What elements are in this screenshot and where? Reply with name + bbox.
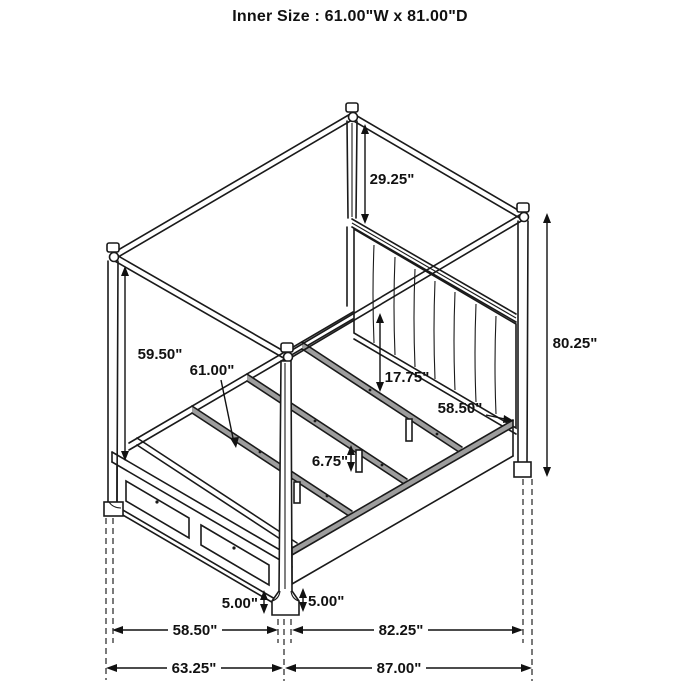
dim-label: 87.00"	[377, 660, 422, 677]
dim-canopy-to-headboard: 29.25"	[361, 124, 414, 224]
right-side-rail	[292, 420, 513, 584]
dim-label: 61.00"	[190, 362, 235, 379]
dim-label: 59.50"	[138, 346, 183, 363]
dim-label: 6.75"	[312, 453, 348, 470]
dim-label: 58.50"	[173, 622, 218, 639]
dim-clearance-left: 5.00"	[222, 590, 268, 614]
dim-label: 82.25"	[379, 622, 424, 639]
dimension-diagram-page: Inner Size : 61.00"W x 81.00"D	[0, 0, 700, 700]
slat-leg	[356, 450, 362, 472]
headboard	[347, 219, 516, 434]
dim-label: 5.00"	[308, 593, 344, 610]
drawer-pull	[155, 500, 158, 503]
dim-side-rail-length: 82.25"	[292, 622, 523, 639]
dim-overall-depth: 87.00"	[285, 660, 532, 677]
right-post-foot	[514, 462, 531, 477]
footboard-drawers	[112, 452, 292, 611]
dim-clearance-right: 5.00"	[299, 588, 344, 612]
slat-leg	[294, 482, 300, 503]
dim-label: 29.25"	[370, 171, 415, 188]
dim-label: 63.25"	[172, 660, 217, 677]
dim-overall-height: 80.25"	[543, 213, 597, 477]
dim-label: 5.00"	[222, 595, 258, 612]
dim-overall-width: 63.25"	[106, 660, 283, 677]
dim-label: 58.50"	[438, 400, 483, 417]
dim-footboard-width: 58.50"	[112, 622, 278, 639]
dim-slat-leg-height: 6.75"	[312, 445, 355, 472]
drawer-pull	[232, 546, 235, 549]
left-post-foot	[104, 502, 123, 516]
dim-label: 17.75"	[385, 369, 430, 386]
canopy-bed-diagram: 29.25" 80.25" 59.50" 61.00"	[0, 0, 700, 700]
dim-label: 80.25"	[553, 335, 598, 352]
slat-leg	[406, 419, 412, 441]
